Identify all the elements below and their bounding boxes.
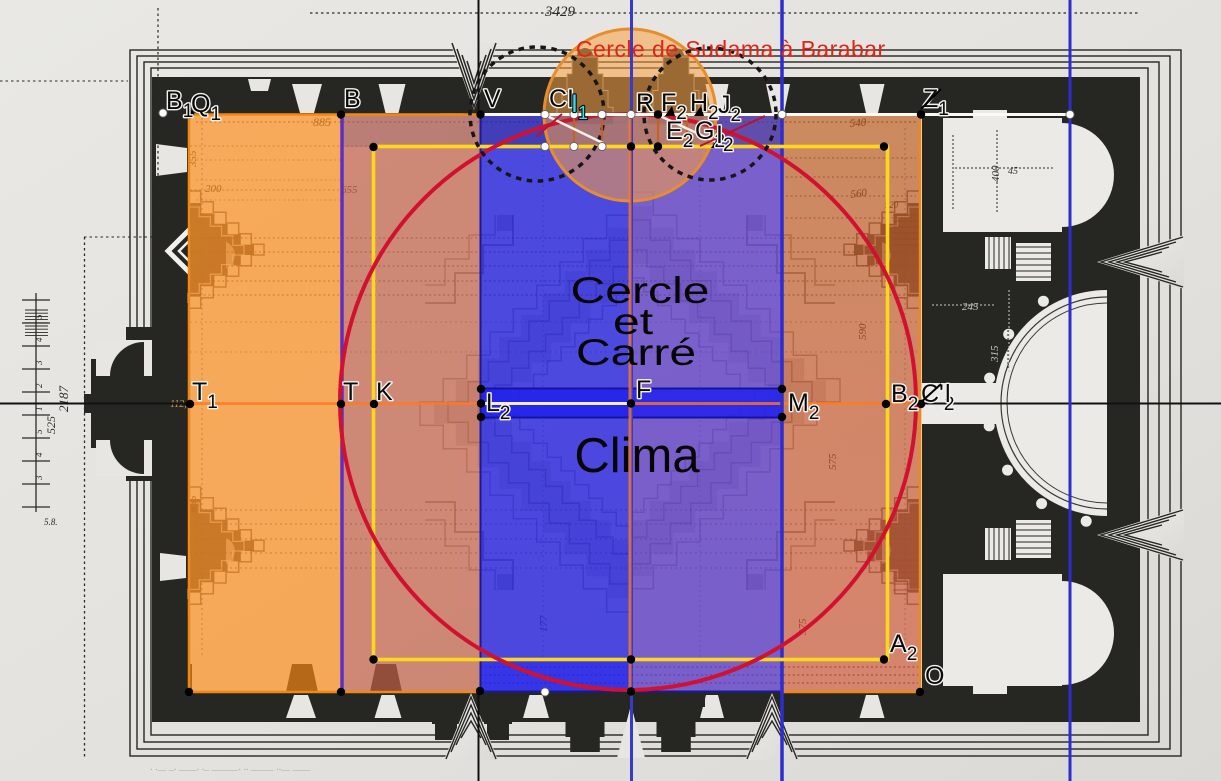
svg-text:3429: 3429 bbox=[544, 4, 576, 20]
svg-text:1: 1 bbox=[34, 407, 44, 412]
svg-text:525: 525 bbox=[44, 416, 58, 434]
svg-text:· ·— –· ——· ·– ———· ·· —–— ··—: · ·— –· ——· ·– ———· ·· —–— ··— —— bbox=[150, 765, 310, 776]
svg-text:2: 2 bbox=[34, 383, 44, 388]
svg-text:R: R bbox=[636, 89, 654, 117]
svg-text:K: K bbox=[376, 378, 393, 406]
svg-text:4: 4 bbox=[34, 337, 44, 342]
svg-text:245: 245 bbox=[962, 301, 979, 313]
svg-text:2187: 2187 bbox=[56, 386, 71, 413]
svg-text:3: 3 bbox=[34, 475, 44, 481]
svg-text:5: 5 bbox=[34, 429, 44, 434]
svg-text:O: O bbox=[925, 662, 944, 690]
svg-text:315: 315 bbox=[989, 345, 1001, 363]
svg-text:B: B bbox=[344, 85, 361, 113]
svg-text:Carré: Carré bbox=[576, 332, 696, 373]
svg-text:5: 5 bbox=[34, 314, 44, 319]
svg-text:4: 4 bbox=[34, 452, 44, 457]
svg-text:F: F bbox=[636, 376, 651, 404]
svg-text:3: 3 bbox=[34, 360, 44, 366]
svg-text:V: V bbox=[484, 85, 501, 113]
svg-text:5.8.: 5.8. bbox=[44, 517, 58, 527]
svg-text:l: l bbox=[945, 380, 951, 408]
svg-text:T: T bbox=[343, 378, 358, 406]
svg-text:Cercle de Sudama à Barabar: Cercle de Sudama à Barabar bbox=[576, 36, 886, 62]
svg-text:Clima: Clima bbox=[574, 429, 700, 483]
